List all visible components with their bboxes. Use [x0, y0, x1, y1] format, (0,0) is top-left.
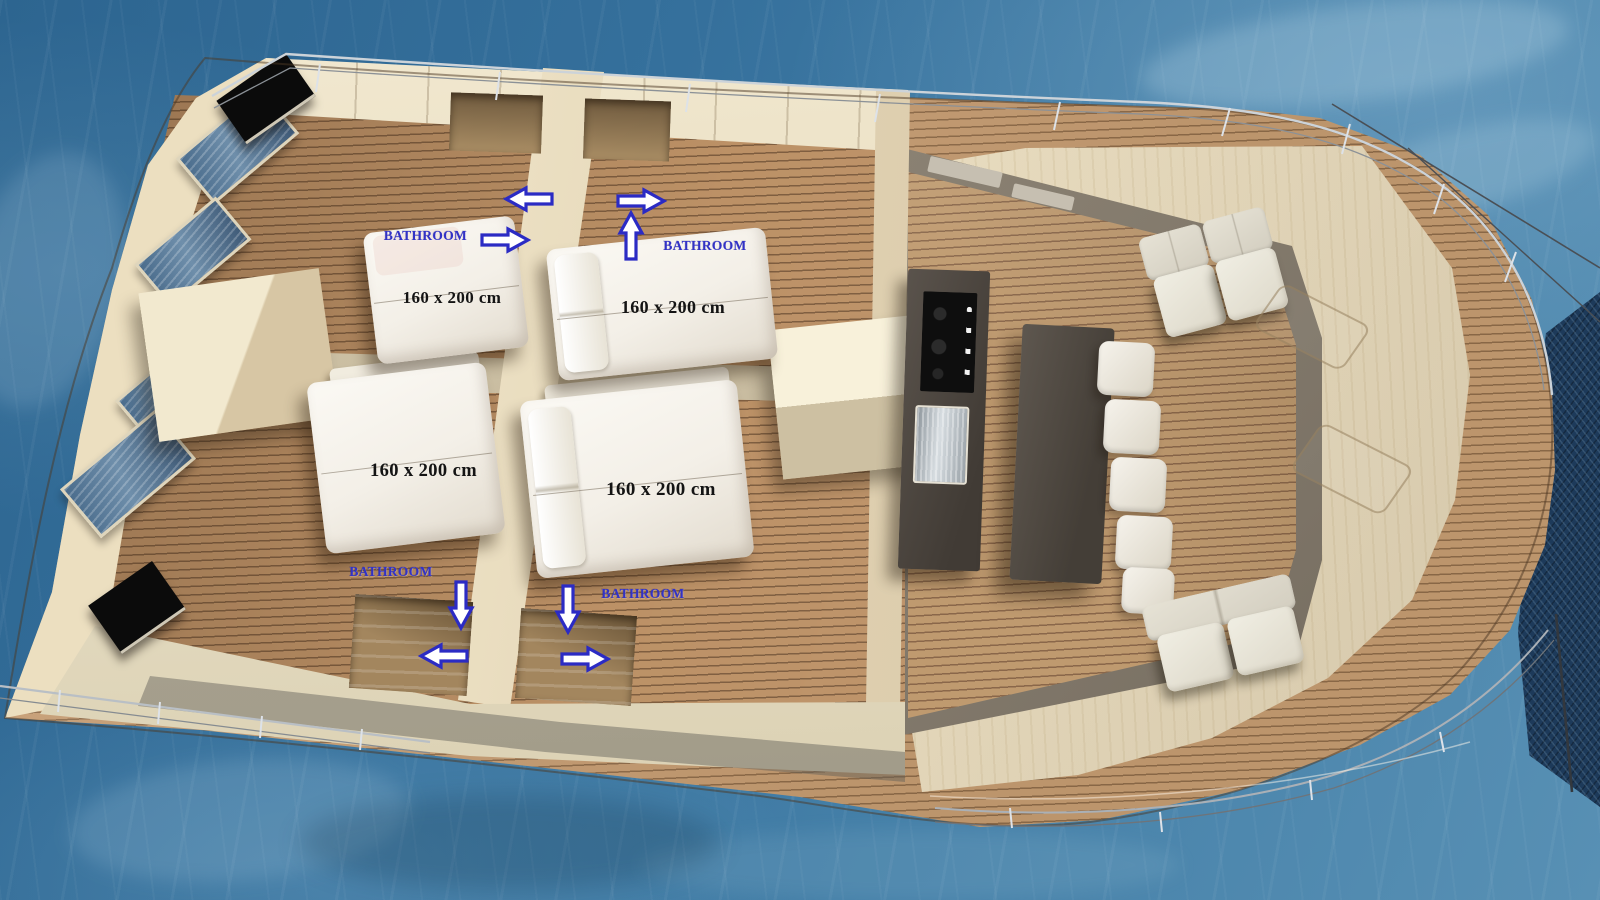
- bathroom-label: BATHROOM: [588, 586, 698, 602]
- bed-starboard-aft: [306, 362, 506, 555]
- bathroom-arrow-down-icon: [448, 580, 474, 630]
- wave-shadow: [300, 795, 720, 890]
- bathroom-doorway: [583, 99, 671, 162]
- render-canvas: BATHROOM BATHROOM BATHROOM BATHROOM 160 …: [0, 0, 1600, 900]
- bench-cushion: [1097, 341, 1156, 398]
- bench-cushion: [1103, 399, 1162, 456]
- cooktop: [920, 291, 977, 393]
- bed-size-label: 160 x 200 cm: [336, 461, 511, 482]
- bed-size-label: 160 x 200 cm: [372, 288, 532, 308]
- cooktop-knobs: [964, 307, 972, 381]
- bed-size-label: 160 x 200 cm: [588, 297, 758, 318]
- bathroom-arrow-left-icon: [504, 186, 554, 212]
- bathroom-doorway: [449, 92, 543, 153]
- galley-counter: [898, 269, 990, 572]
- bathroom-arrow-left-icon: [419, 643, 469, 669]
- sink: [913, 405, 970, 485]
- bathroom-label: BATHROOM: [368, 228, 483, 244]
- bathroom-arrow-up-icon: [618, 211, 644, 261]
- bathroom-arrow-down-icon: [555, 584, 581, 634]
- bathroom-label: BATHROOM: [650, 238, 760, 254]
- bench-cushion: [1115, 515, 1174, 572]
- wave-streak: [640, 830, 1180, 900]
- bathroom-arrow-right-icon: [560, 646, 610, 672]
- bench-cushion: [1109, 457, 1168, 514]
- bed-size-label: 160 x 200 cm: [572, 479, 750, 501]
- bathroom-arrow-right-icon: [480, 227, 530, 253]
- bathroom-label: BATHROOM: [336, 564, 446, 580]
